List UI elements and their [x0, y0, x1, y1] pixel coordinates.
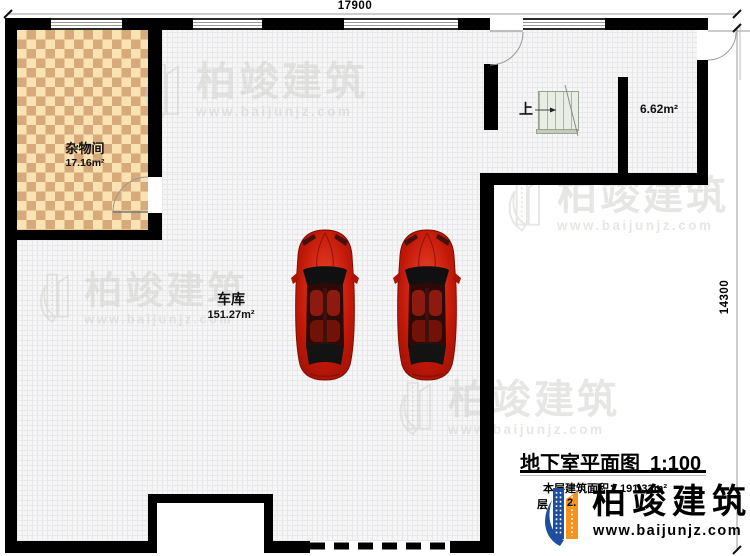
- room-area: 17.16m²: [35, 157, 135, 169]
- floorplan-canvas: 柏竣建筑 www.baijunjz.com 柏竣建筑 www.baijunjz.…: [0, 0, 750, 556]
- dimension-right: 14300: [719, 267, 733, 327]
- brand-website: www.baijunjz.com: [593, 523, 742, 539]
- storage-room-label: 杂物间 17.16m²: [35, 138, 135, 169]
- door-swing: [490, 31, 523, 65]
- garage-label: 车库 151.27m²: [181, 289, 281, 321]
- obscured-text-fragment: 2.: [567, 497, 576, 509]
- stair-break-line: [565, 85, 578, 136]
- dimension-top: 17900: [280, 0, 430, 12]
- title-underline-light: [520, 475, 706, 476]
- title-underline: [520, 470, 706, 473]
- stair-up-label: 上: [517, 99, 535, 119]
- brand-name: 柏竣建筑: [592, 484, 750, 521]
- room-name: 杂物间: [35, 138, 135, 157]
- small-room-label: 6.62m²: [614, 102, 704, 116]
- door-swing: [708, 26, 750, 80]
- door-swing: [113, 177, 148, 212]
- room-name: 车库: [181, 289, 281, 309]
- room-area: 151.27m²: [181, 309, 281, 321]
- stair-direction-arrow: [535, 108, 556, 113]
- building-logo-icon: [539, 486, 589, 548]
- car-top-view: [289, 226, 464, 386]
- room-area: 6.62m²: [614, 102, 704, 116]
